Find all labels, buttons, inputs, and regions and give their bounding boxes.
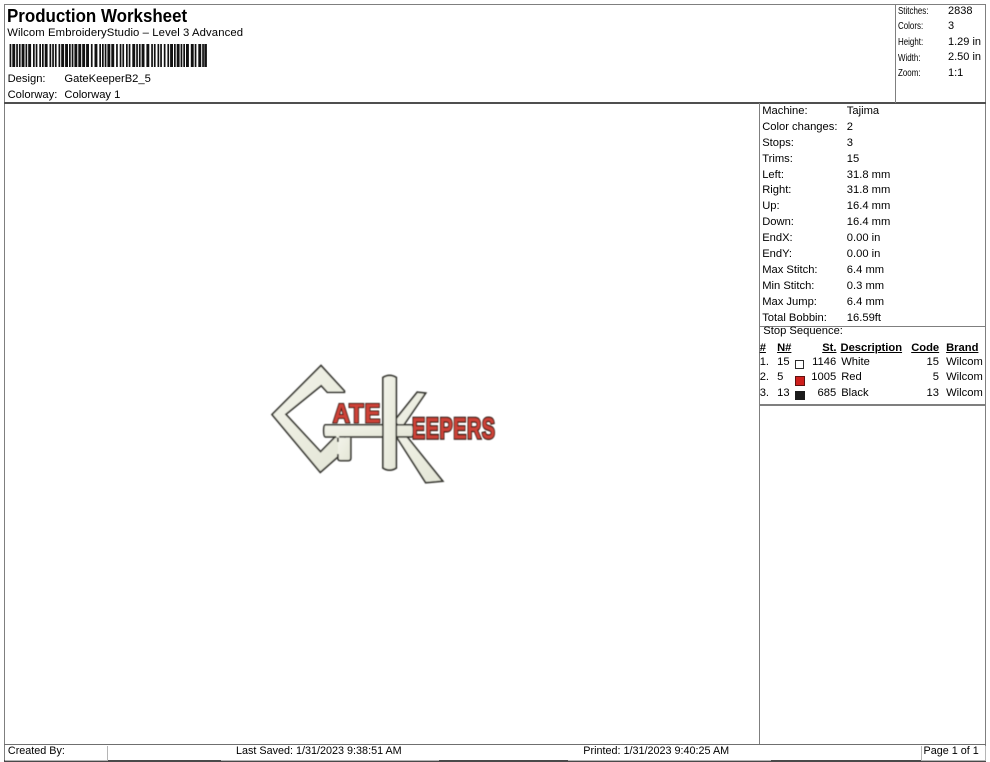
svg-text:ATE: ATE: [333, 399, 381, 429]
svg-text:EEPERS: EEPERS: [412, 412, 496, 445]
